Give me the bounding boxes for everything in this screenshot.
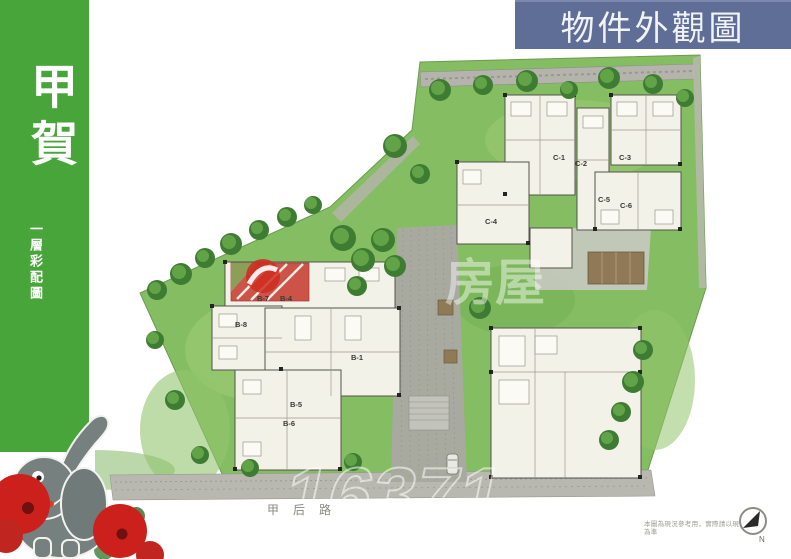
building-label: B-8 <box>235 320 247 329</box>
compass-n-label: N <box>759 535 765 544</box>
brand-title-vertical: 甲賀 <box>14 62 74 176</box>
building-label: C-1 <box>553 153 565 162</box>
watermark-number: 16371 <box>276 452 511 530</box>
building-label: B-6 <box>283 419 295 428</box>
elephant-mascot <box>0 400 170 559</box>
building-label: B-4 <box>280 294 293 303</box>
building-label: B-5 <box>290 400 302 409</box>
north-compass: N <box>733 502 773 544</box>
building-label: C-6 <box>620 201 632 210</box>
wood-deck <box>588 252 644 284</box>
watermark-text: 房屋 <box>445 255 545 311</box>
building-label: C-5 <box>598 195 610 204</box>
plan-type-label-vertical: 一層彩配圖 <box>26 222 45 302</box>
building-label: C-4 <box>485 217 498 226</box>
site-plan: C-1 C-2 C-3 C-4 C-5 C-6 B-7 B-4 B-8 B-1 … <box>95 50 715 530</box>
page-title-bar: 物件外觀圖 <box>515 0 791 49</box>
building-label: B-1 <box>351 353 363 362</box>
building-label: B-7 <box>257 294 269 303</box>
page-title: 物件外觀圖 <box>561 1 746 50</box>
building-label: C-3 <box>619 153 631 162</box>
brand-sidebar: 甲賀 一層彩配圖 <box>0 0 89 452</box>
brand-logo-watermark <box>246 259 280 293</box>
building-label: C-2 <box>575 159 587 168</box>
road-name-label: 甲后路 <box>267 502 345 517</box>
